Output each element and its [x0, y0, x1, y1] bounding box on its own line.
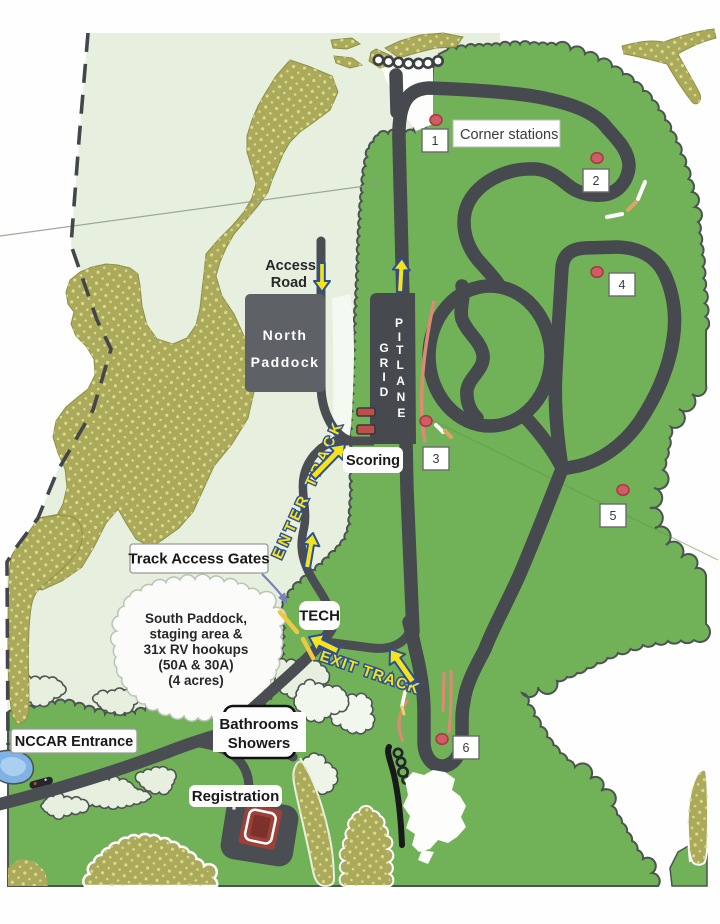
- svg-text:D: D: [380, 385, 389, 399]
- svg-text:T: T: [396, 343, 404, 357]
- svg-text:Track Access Gates: Track Access Gates: [128, 551, 269, 568]
- svg-text:I: I: [398, 330, 401, 344]
- svg-text:Registration: Registration: [192, 788, 280, 805]
- svg-text:31x RV hookups: 31x RV hookups: [144, 642, 249, 657]
- svg-text:Showers: Showers: [228, 735, 291, 752]
- svg-text:6: 6: [463, 741, 470, 755]
- svg-text:Scoring: Scoring: [346, 453, 400, 469]
- svg-text:3: 3: [433, 452, 440, 466]
- svg-text:L: L: [397, 358, 404, 372]
- svg-text:Access: Access: [265, 258, 316, 274]
- svg-text:I: I: [382, 370, 385, 384]
- svg-text:Road: Road: [271, 275, 307, 291]
- svg-text:Bathrooms: Bathrooms: [219, 716, 298, 733]
- svg-text:P: P: [395, 316, 403, 330]
- svg-text:(50A & 30A): (50A & 30A): [158, 658, 233, 673]
- svg-text:South Paddock,: South Paddock,: [145, 611, 247, 626]
- svg-text:N: N: [397, 390, 406, 404]
- svg-text:Paddock: Paddock: [251, 354, 320, 370]
- svg-text:North: North: [263, 327, 308, 343]
- svg-text:TECH: TECH: [299, 608, 340, 625]
- svg-text:Corner stations: Corner stations: [460, 127, 558, 143]
- svg-text:E: E: [397, 406, 405, 420]
- svg-text:A: A: [396, 374, 405, 388]
- svg-text:NCCAR Entrance: NCCAR Entrance: [15, 734, 133, 750]
- svg-text:G: G: [379, 341, 388, 355]
- svg-text:4: 4: [619, 278, 626, 292]
- svg-text:5: 5: [610, 509, 617, 523]
- svg-text:staging area &: staging area &: [149, 627, 242, 642]
- svg-text:2: 2: [593, 174, 600, 188]
- svg-text:R: R: [380, 356, 389, 370]
- svg-text:(4 acres): (4 acres): [168, 673, 224, 688]
- svg-text:1: 1: [432, 134, 439, 148]
